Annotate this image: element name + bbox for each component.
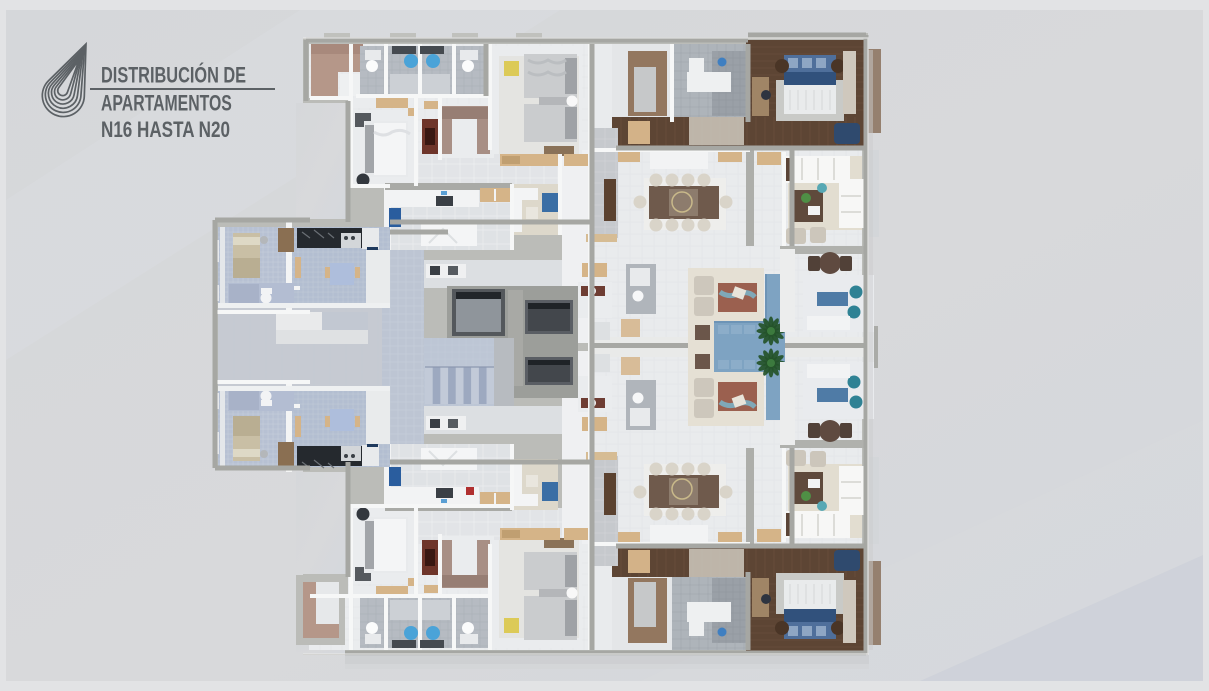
svg-text:APARTAMENTOS: APARTAMENTOS — [101, 90, 232, 115]
svg-text:N16 HASTA N20: N16 HASTA N20 — [101, 117, 230, 142]
svg-text:DISTRIBUCIÓN DE: DISTRIBUCIÓN DE — [101, 62, 246, 87]
